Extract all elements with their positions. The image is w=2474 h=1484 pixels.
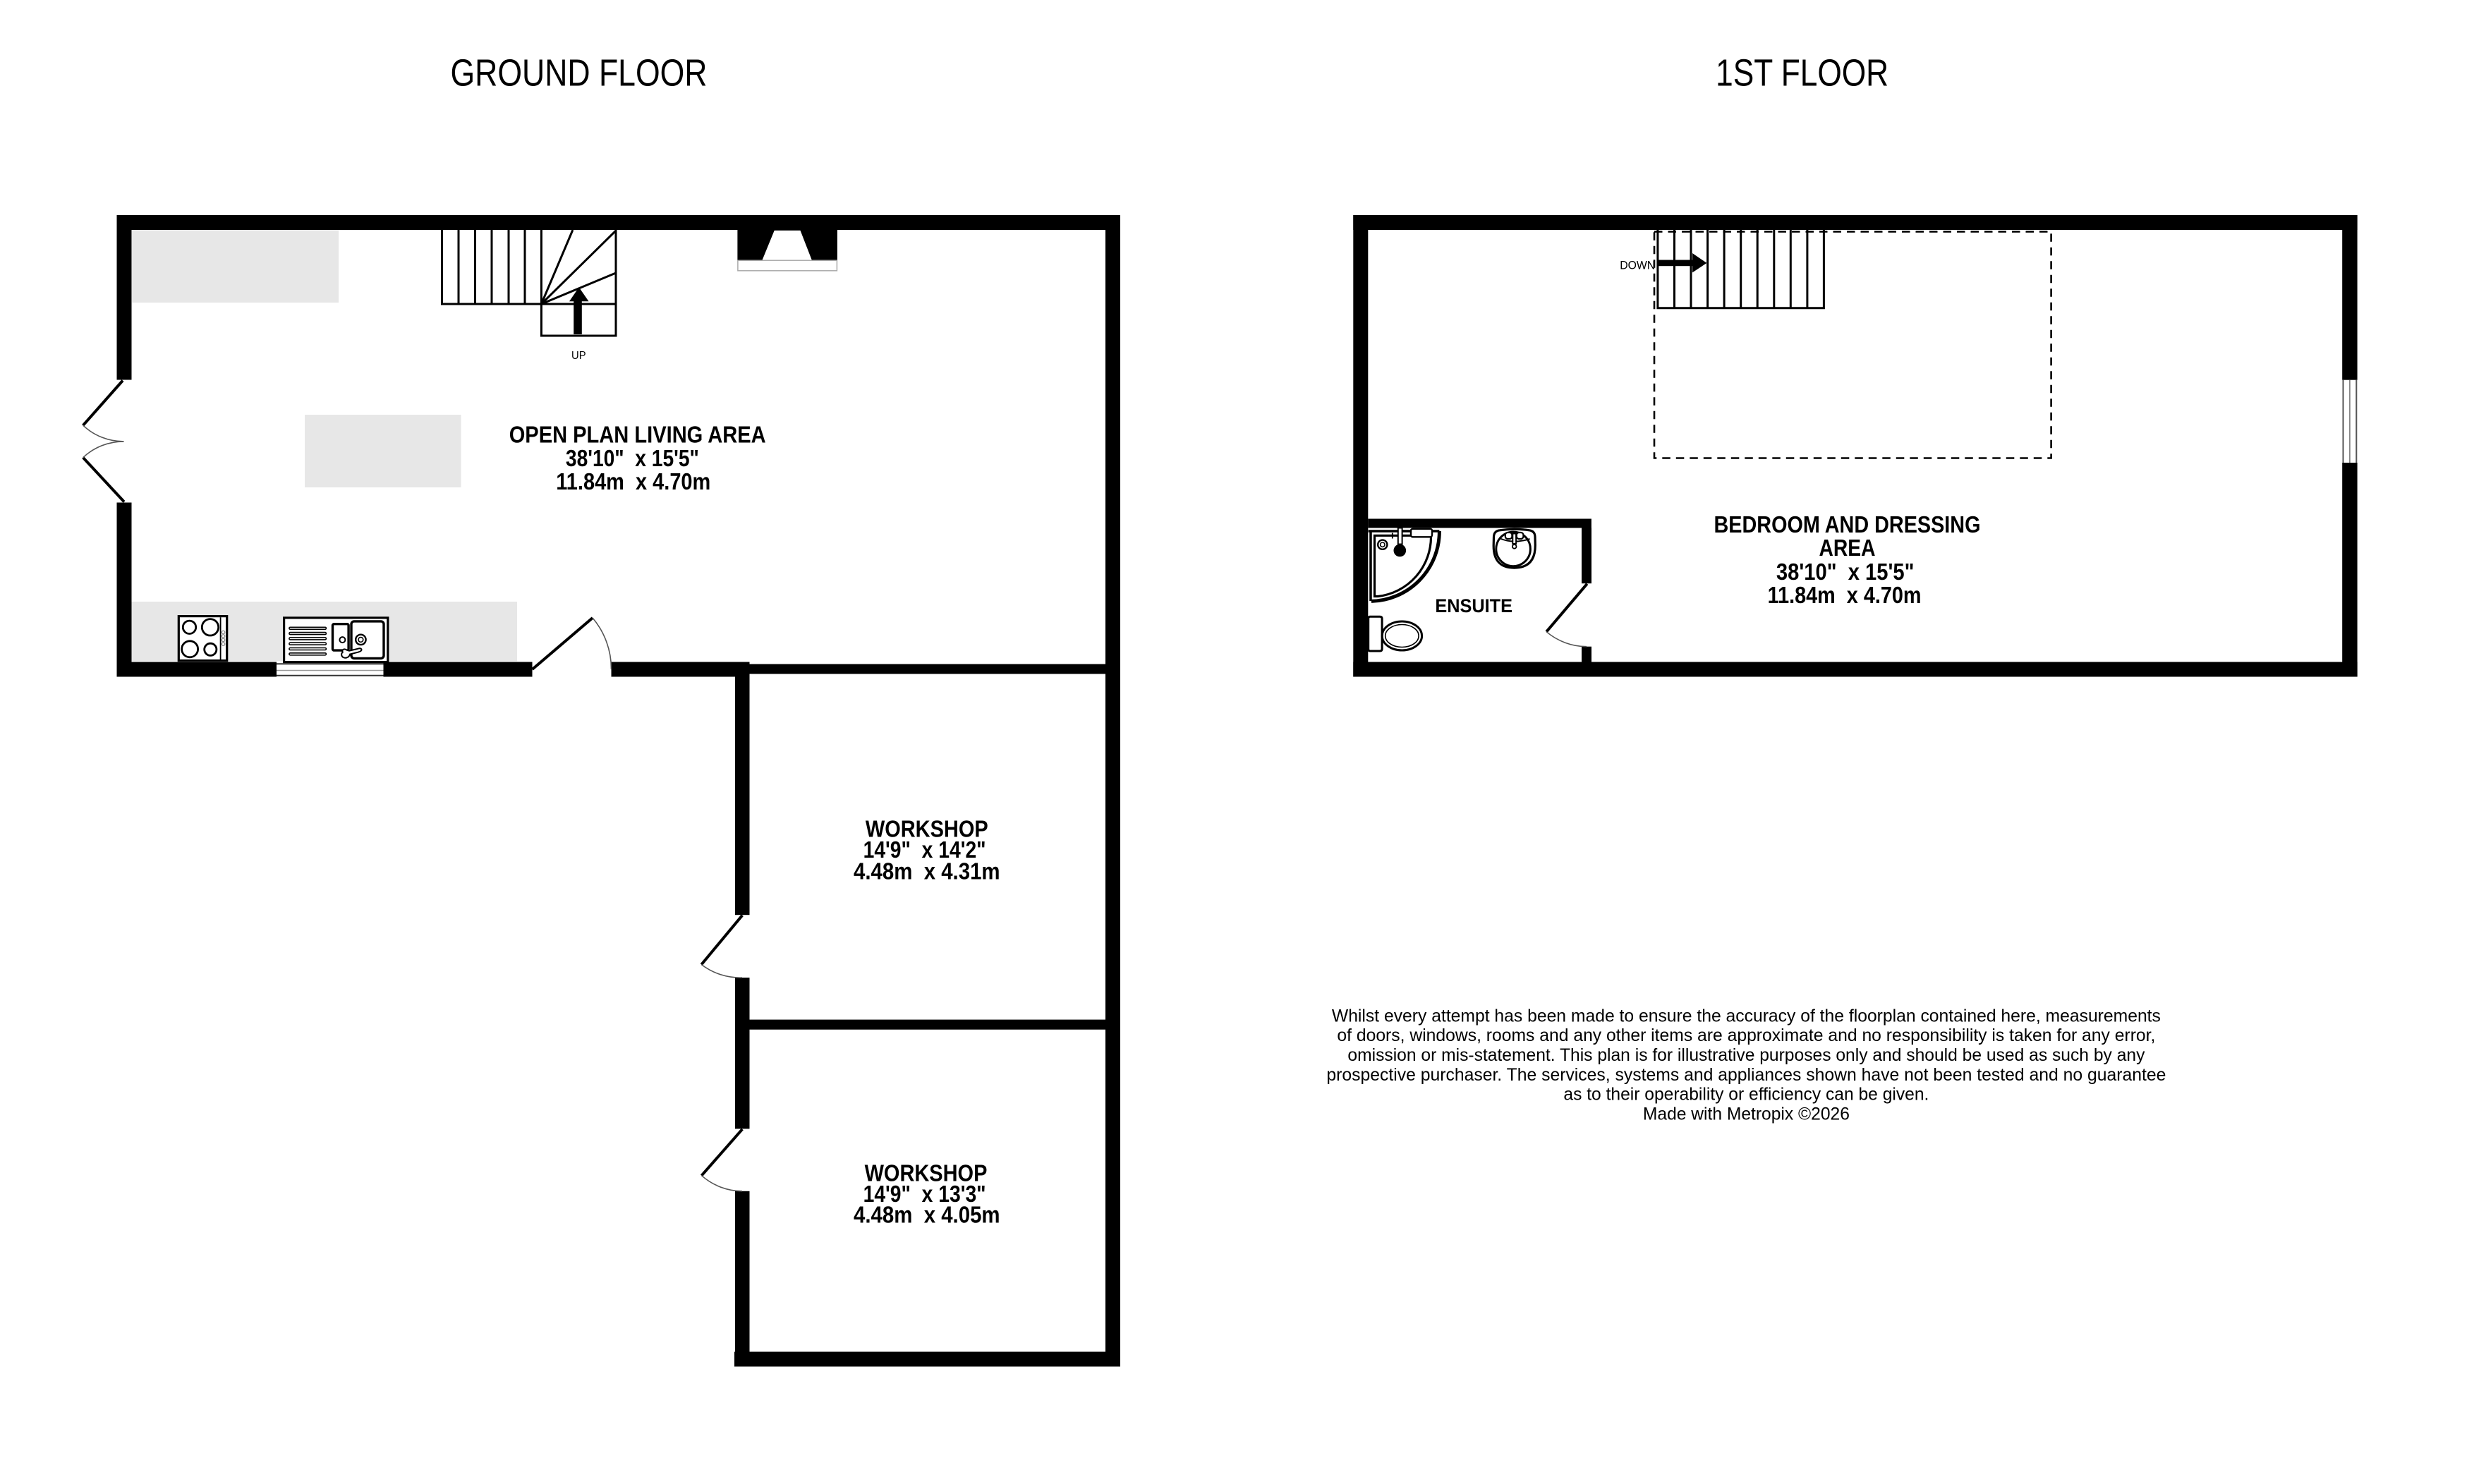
svg-text:Made with Metropix ©2026: Made with Metropix ©2026 bbox=[1643, 1104, 1850, 1124]
svg-text:ENSUITE: ENSUITE bbox=[1435, 595, 1512, 616]
svg-text:4.48m x 4.05m: 4.48m x 4.05m bbox=[854, 1202, 1000, 1228]
svg-text:11.84m x 4.70m: 11.84m x 4.70m bbox=[556, 468, 710, 494]
svg-text:38'10" x 15'5": 38'10" x 15'5" bbox=[566, 445, 699, 471]
svg-text:AREA: AREA bbox=[1819, 535, 1876, 561]
svg-text:Whilst every attempt has been: Whilst every attempt has been made to en… bbox=[1332, 1006, 2161, 1026]
svg-text:OPEN PLAN LIVING AREA: OPEN PLAN LIVING AREA bbox=[509, 422, 766, 448]
svg-text:1ST FLOOR: 1ST FLOOR bbox=[1716, 52, 1888, 95]
svg-text:11.84m x 4.70m: 11.84m x 4.70m bbox=[1768, 582, 1922, 608]
svg-text:as to their operability or eff: as to their operability or efficiency ca… bbox=[1563, 1085, 1929, 1105]
svg-text:DOWN: DOWN bbox=[1620, 258, 1655, 272]
svg-text:UP: UP bbox=[571, 350, 586, 362]
svg-text:GROUND FLOOR: GROUND FLOOR bbox=[451, 52, 708, 95]
svg-text:BEDROOM AND DRESSING: BEDROOM AND DRESSING bbox=[1714, 511, 1981, 537]
svg-text:omission or mis-statement. Thi: omission or mis-statement. This plan is … bbox=[1347, 1045, 2145, 1065]
svg-text:prospective purchaser. The ser: prospective purchaser. The services, sys… bbox=[1326, 1065, 2166, 1085]
svg-text:of doors, windows, rooms and a: of doors, windows, rooms and any other i… bbox=[1337, 1026, 2155, 1045]
svg-text:38'10" x 15'5": 38'10" x 15'5" bbox=[1776, 559, 1915, 585]
svg-text:4.48m x 4.31m: 4.48m x 4.31m bbox=[854, 858, 1000, 884]
